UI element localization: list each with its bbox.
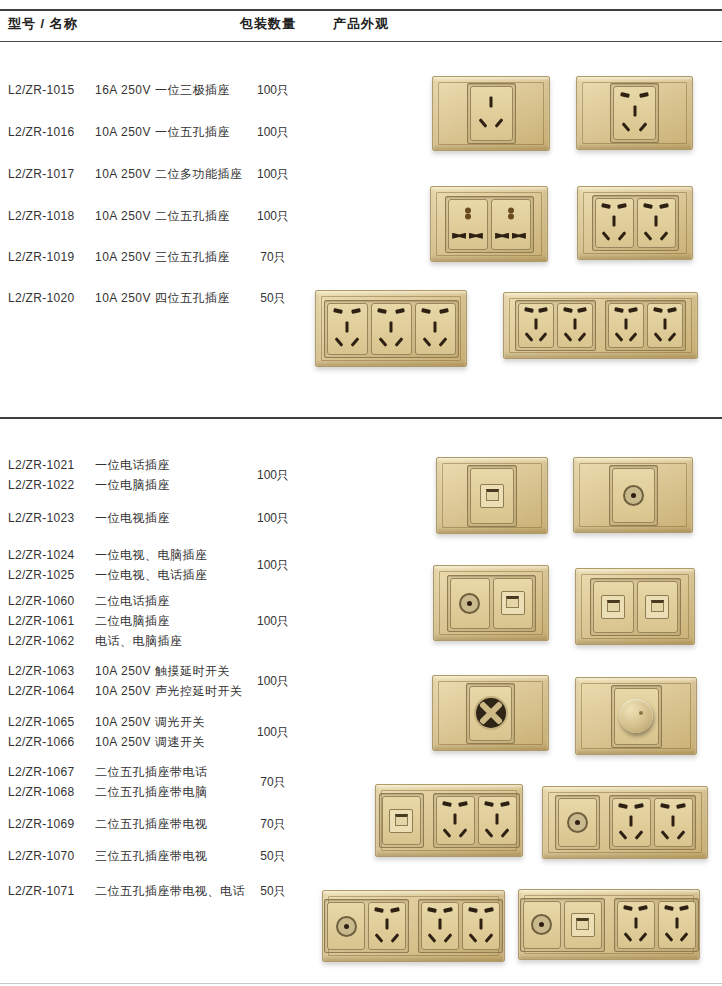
socket-double-jack (575, 568, 695, 645)
column-header-quantity: 包装数量 (240, 15, 296, 33)
module-5hole-socket (595, 198, 634, 248)
module-recess (609, 465, 658, 526)
catalog-row: L2/ZR-102010A 250V 四位五孔插座50只 (8, 288, 308, 308)
coax-connector (623, 485, 644, 506)
rotary-knob (619, 699, 653, 733)
coax-connector (459, 593, 480, 614)
socket-tv-3x5hole (322, 890, 505, 962)
module-tv-coax (523, 901, 561, 949)
model-code: L2/ZR-1021 (8, 458, 95, 472)
module-5hole-socket (518, 303, 554, 348)
package-quantity: 100只 (242, 508, 304, 528)
coax-connector (531, 914, 552, 935)
module-rj-jack (593, 581, 634, 633)
catalog-row: L2/ZR-101610A 250V 一位五孔插座100只 (8, 122, 308, 142)
top-rule (0, 9, 722, 11)
model-code: L2/ZR-1015 (8, 83, 95, 97)
product-description: 一位电脑插座 (95, 477, 170, 494)
module-recess (520, 898, 605, 952)
package-quantity: 100只 (242, 545, 304, 585)
module-rj-jack (564, 901, 602, 949)
product-description: 一位电视、电话插座 (95, 567, 208, 584)
module-5hole-socket (415, 303, 456, 355)
product-description: 二位五孔插座带电视 (95, 816, 208, 833)
module-5hole-socket (637, 198, 676, 248)
package-quantity: 70只 (242, 762, 304, 802)
model-code: L2/ZR-1023 (8, 511, 95, 525)
socket-phone-2x5hole (375, 784, 523, 857)
catalog-row: L2/ZR-101810A 250V 二位五孔插座100只 (8, 206, 308, 226)
module-rj-jack (382, 796, 421, 845)
model-code: L2/ZR-1068 (8, 785, 95, 799)
model-code: L2/ZR-1066 (8, 735, 95, 749)
product-description: 二位五孔插座带电脑 (95, 784, 208, 801)
product-description: 一位电视插座 (95, 510, 170, 527)
module-5hole-socket (478, 796, 517, 845)
column-header-appearance: 产品外观 (333, 15, 389, 33)
bottom-rule (0, 983, 722, 984)
module-5hole-socket (654, 798, 693, 847)
socket-2gang-universal (430, 186, 548, 262)
product-description: 10A 250V 二位多功能插座 (95, 166, 242, 183)
rj-jack-opening (480, 484, 504, 508)
module-5hole-socket (557, 303, 593, 348)
rj-jack-opening (571, 913, 595, 937)
socket-2gang-5hole (577, 186, 693, 260)
product-description: 二位五孔插座带电话 (95, 764, 208, 781)
model-code: L2/ZR-1019 (8, 250, 95, 264)
product-description: 二位电话插座 (95, 593, 170, 610)
model-code: L2/ZR-1024 (8, 548, 95, 562)
module-rj-jack (637, 581, 678, 633)
catalog-row: L2/ZR-1071二位五孔插座带电视、电话50只 (8, 881, 308, 901)
socket-3gang-5hole (315, 290, 467, 367)
module-5hole-socket (613, 86, 656, 140)
module-rj-jack (470, 468, 514, 524)
coax-connector (567, 812, 588, 833)
rj-jack-opening (645, 595, 669, 619)
model-code: L2/ZR-1017 (8, 167, 95, 181)
module-recess (467, 465, 517, 527)
module-recess (418, 899, 503, 953)
model-code: L2/ZR-1020 (8, 291, 95, 305)
catalog-row: L2/ZR-106310A 250V 触摸延时开关L2/ZR-106410A 2… (8, 661, 308, 701)
switch-rotary-dimmer (575, 677, 697, 755)
module-5hole-socket (371, 303, 412, 355)
module-recess (467, 83, 516, 144)
rj-jack-opening (601, 595, 625, 619)
rj-jack-opening (501, 591, 525, 615)
catalog-row: L2/ZR-101910A 250V 三位五孔插座70只 (8, 247, 308, 267)
package-quantity: 50只 (242, 846, 304, 866)
catalog-row: L2/ZR-1021一位电话插座L2/ZR-1022一位电脑插座100只 (8, 455, 308, 495)
socket-1gang-5hole (576, 76, 693, 150)
catalog-row: L2/ZR-106510A 250V 调光开关L2/ZR-106610A 250… (8, 712, 308, 752)
model-code: L2/ZR-1071 (8, 884, 95, 898)
product-description: 10A 250V 四位五孔插座 (95, 290, 230, 307)
package-quantity: 50只 (242, 288, 304, 308)
module-5hole-socket (608, 303, 644, 348)
coax-connector (336, 916, 357, 937)
socket-4gang-5hole (503, 292, 698, 359)
model-code: L2/ZR-1022 (8, 478, 95, 492)
socket-tv-phone-2x5hole (518, 889, 700, 960)
module-5hole-socket (368, 902, 406, 950)
module-touch-delay-switch (469, 686, 512, 741)
product-description: 电话、电脑插座 (95, 633, 183, 650)
module-recess (447, 575, 536, 632)
model-code: L2/ZR-1064 (8, 684, 95, 698)
header-underline (0, 41, 722, 42)
product-description: 一位电视、电脑插座 (95, 547, 208, 564)
module-5hole-socket (647, 303, 683, 348)
module-5hole-socket (462, 902, 500, 950)
module-recess (609, 795, 696, 850)
catalog-row: L2/ZR-1024一位电视、电脑插座L2/ZR-1025一位电视、电话插座10… (8, 545, 308, 585)
product-description: 10A 250V 触摸延时开关 (95, 663, 230, 680)
package-quantity: 100只 (242, 122, 304, 142)
product-description: 10A 250V 调速开关 (95, 734, 205, 751)
product-description: 10A 250V 一位五孔插座 (95, 124, 230, 141)
module-tv-coax (450, 578, 490, 629)
socket-tv (573, 457, 693, 533)
module-recess (614, 898, 699, 952)
socket-1gang-3pin (432, 76, 550, 151)
catalog-row: L2/ZR-1069二位五孔插座带电视70只 (8, 814, 308, 834)
product-description: 10A 250V 三位五孔插座 (95, 249, 230, 266)
module-universal-socket (448, 199, 488, 250)
model-code: L2/ZR-1070 (8, 849, 95, 863)
module-recess (445, 196, 534, 253)
socket-phone (436, 457, 548, 534)
module-recess (433, 793, 520, 848)
module-recess (466, 683, 515, 744)
model-code: L2/ZR-1069 (8, 817, 95, 831)
module-recess (611, 685, 662, 748)
catalog-row: L2/ZR-101516A 250V 一位三极插座100只 (8, 80, 308, 100)
catalog-row: L2/ZR-1070三位五孔插座带电视50只 (8, 846, 308, 866)
package-quantity: 100只 (242, 206, 304, 226)
model-code: L2/ZR-1062 (8, 634, 95, 648)
package-quantity: 50只 (242, 881, 304, 901)
socket-tv-2x5hole (542, 786, 708, 859)
catalog-row: L2/ZR-1023一位电视插座100只 (8, 508, 308, 528)
model-code: L2/ZR-1060 (8, 594, 95, 608)
rj-jack-opening (389, 809, 413, 833)
module-5hole-socket (327, 303, 368, 355)
product-description: 10A 250V 二位五孔插座 (95, 208, 230, 225)
module-recess (605, 300, 686, 351)
module-tv-coax (558, 798, 597, 847)
module-recess (555, 795, 600, 850)
module-3pin-socket (470, 86, 513, 141)
module-recess (379, 793, 424, 848)
product-description: 二位五孔插座带电视、电话 (95, 883, 245, 900)
module-recess (324, 899, 409, 953)
package-quantity: 100只 (242, 164, 304, 184)
package-quantity: 100只 (242, 712, 304, 752)
module-tv-coax (327, 902, 365, 950)
product-description: 二位电脑插座 (95, 613, 170, 630)
switch-touch-delay (432, 675, 549, 751)
catalog-row: L2/ZR-101710A 250V 二位多功能插座100只 (8, 164, 308, 184)
product-description: 10A 250V 调光开关 (95, 714, 205, 731)
touch-button (474, 696, 508, 730)
module-5hole-socket (421, 902, 459, 950)
package-quantity: 70只 (242, 247, 304, 267)
module-universal-socket (491, 199, 531, 250)
package-quantity: 100只 (242, 455, 304, 495)
module-5hole-socket (617, 901, 655, 949)
package-quantity: 100只 (242, 80, 304, 100)
model-code: L2/ZR-1018 (8, 209, 95, 223)
model-code: L2/ZR-1061 (8, 614, 95, 628)
module-recess (590, 578, 681, 636)
package-quantity: 100只 (242, 661, 304, 701)
package-quantity: 70只 (242, 814, 304, 834)
module-rotary-dimmer (614, 688, 659, 745)
model-code: L2/ZR-1025 (8, 568, 95, 582)
product-description: 16A 250V 一位三极插座 (95, 82, 230, 99)
product-description: 一位电话插座 (95, 457, 170, 474)
module-recess (592, 195, 679, 251)
product-description: 三位五孔插座带电视 (95, 848, 208, 865)
model-code: L2/ZR-1065 (8, 715, 95, 729)
module-tv-coax (612, 468, 655, 523)
module-5hole-socket (436, 796, 475, 845)
catalog-row: L2/ZR-1067二位五孔插座带电话L2/ZR-1068二位五孔插座带电脑70… (8, 762, 308, 802)
module-5hole-socket (658, 901, 696, 949)
model-code: L2/ZR-1016 (8, 125, 95, 139)
package-quantity: 100只 (242, 591, 304, 651)
module-5hole-socket (612, 798, 651, 847)
catalog-row: L2/ZR-1060二位电话插座L2/ZR-1061二位电脑插座L2/ZR-10… (8, 591, 308, 651)
column-header-model-name: 型号 / 名称 (8, 15, 78, 33)
module-recess (324, 300, 459, 358)
model-code: L2/ZR-1063 (8, 664, 95, 678)
socket-tv-plus-jack (433, 565, 549, 641)
product-description: 10A 250V 声光控延时开关 (95, 683, 242, 700)
module-recess (515, 300, 596, 351)
module-recess (610, 83, 659, 143)
model-code: L2/ZR-1067 (8, 765, 95, 779)
catalog-page: 型号 / 名称 包装数量 产品外观 L2/ZR-101516A 250V 一位三… (0, 0, 722, 986)
section-divider (0, 417, 722, 419)
module-rj-jack (493, 578, 533, 629)
